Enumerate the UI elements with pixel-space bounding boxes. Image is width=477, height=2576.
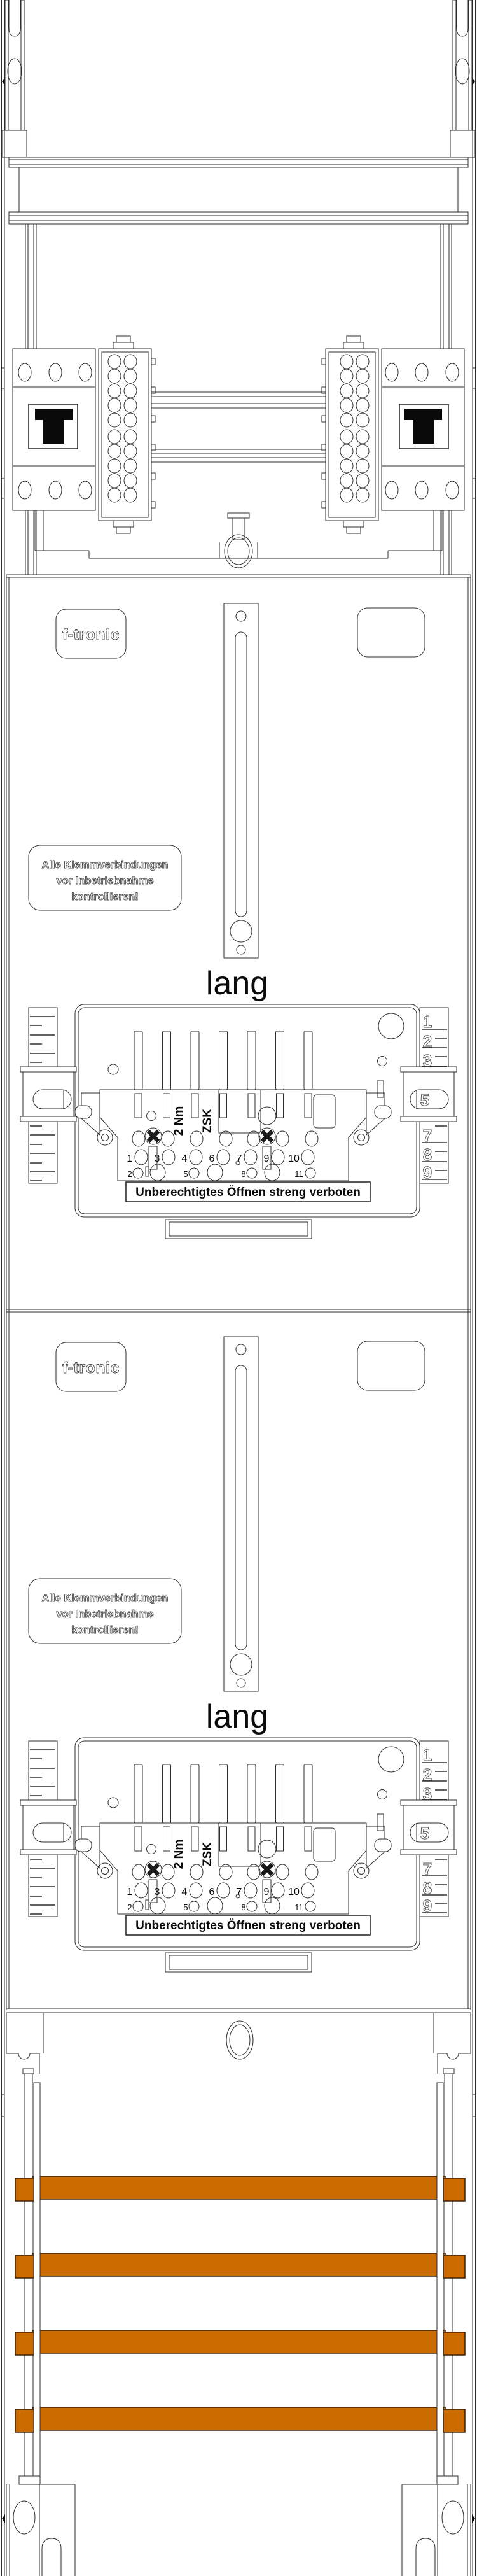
- hole-number: 7: [237, 1153, 242, 1164]
- warning-line-3: kontrollieren!: [71, 891, 138, 903]
- hole-number: 6: [209, 1887, 215, 1897]
- hole-number: 7: [237, 1887, 242, 1897]
- length-marking: lang: [206, 1698, 268, 1735]
- sealable-main-terminal-right: [382, 349, 464, 510]
- busbar-1: [15, 2176, 465, 2201]
- mounting-slot-bracket: [224, 1337, 258, 1691]
- top-mounting-channel-right: [450, 0, 475, 157]
- hole-number: 5: [183, 1903, 188, 1912]
- corner-bracket-left: [6, 2013, 43, 2074]
- hole-number: 2: [127, 1169, 132, 1179]
- slider-right: 5: [401, 1800, 457, 1855]
- bottom-bracket-right: [402, 2484, 471, 2576]
- seal-warning-label: Unberechtigtes Öffnen streng verboten: [126, 1915, 370, 1935]
- zsk-terminal-device: 1 2 3 7 8 9: [20, 1738, 457, 1972]
- hole-number: 8: [241, 1903, 245, 1912]
- keyhole-slot: [457, 0, 468, 36]
- hole-number: 1: [127, 1153, 133, 1164]
- busbar-section: [6, 2013, 471, 2576]
- busbar-4: [15, 2407, 465, 2432]
- hole-number: 3: [155, 1887, 160, 1897]
- channel-foot: [2, 130, 27, 157]
- terminal-plate: [100, 1090, 366, 1181]
- hole-number: 9: [264, 1887, 270, 1897]
- hole-number: 8: [241, 1169, 245, 1179]
- mounting-hole: [13, 2501, 35, 2534]
- hole-number: 10: [288, 1153, 300, 1164]
- warning-line-1: Alle Klemmverbindungen: [42, 859, 169, 871]
- hole-number: 11: [294, 1169, 303, 1179]
- hole-number: 9: [264, 1153, 270, 1164]
- terminal-strip-left: [99, 336, 155, 533]
- ruler-number: 1: [423, 1012, 432, 1031]
- ruler-slider-number: 5: [420, 1824, 429, 1843]
- warning-line-1: Alle Klemmverbindungen: [42, 1593, 169, 1604]
- terminal-plate: [100, 1823, 366, 1914]
- corner-bracket-right: [434, 2013, 471, 2074]
- meter-cabinet-diagram: f-tronic Alle Klemmverbindungen vor Inbe…: [0, 0, 477, 2576]
- hole-number: 11: [294, 1903, 303, 1912]
- din-rail: [9, 157, 468, 224]
- cover-tab: [165, 1220, 312, 1239]
- hole-number: 4: [182, 1153, 188, 1164]
- frame-marker-icon: [2, 77, 475, 86]
- warning-line-2: vor Inbetriebnahme: [56, 875, 153, 887]
- torque-marking: 2 Nm: [172, 1106, 186, 1136]
- terminal-strip-right: [322, 336, 378, 533]
- busbar-3: [15, 2330, 465, 2355]
- warning-line-3: kontrollieren!: [71, 1624, 138, 1636]
- hole-number: 1: [127, 1887, 133, 1897]
- seal-warning-text: Unberechtigtes Öffnen streng verboten: [135, 1186, 361, 1199]
- warning-label: Alle Klemmverbindungen vor Inbetriebnahm…: [29, 1579, 181, 1643]
- ruler-number: 8: [423, 1145, 432, 1164]
- panel-section-2: f-tronic Alle Klemmverbindungen vor Inbe…: [20, 1337, 457, 1972]
- keyhole-slot: [42, 2538, 61, 2576]
- panel-section-1: f-tronic Alle Klemmverbindungen vor Inbe…: [20, 603, 457, 1239]
- hole-number: 10: [288, 1887, 300, 1897]
- mounting-hole: [455, 59, 469, 84]
- keyhole-slot: [9, 0, 20, 36]
- hole-number: 3: [155, 1153, 160, 1164]
- channel-foot: [450, 130, 475, 157]
- cover-tab: [165, 1953, 312, 1972]
- zsk-terminal-device: 1 2 3 7 8 9: [20, 1004, 457, 1239]
- hole-number: 4: [182, 1887, 188, 1897]
- length-marking: lang: [206, 965, 268, 1002]
- hole-number: 2: [127, 1903, 132, 1912]
- mounting-slot-bracket: [224, 603, 258, 958]
- ruler-number: 9: [423, 1163, 432, 1182]
- f-tronic-logo-text: f-tronic: [62, 1359, 120, 1377]
- ruler-number: 9: [423, 1896, 432, 1915]
- seal-warning-text: Unberechtigtes Öffnen streng verboten: [135, 1919, 361, 1932]
- top-mounting-channel-left: [2, 0, 27, 157]
- ruler-number: 2: [423, 1032, 432, 1051]
- frame-marker-icon: [2, 2514, 475, 2523]
- keyhole-slot: [416, 2538, 435, 2576]
- sealable-main-terminal-left: [13, 349, 95, 510]
- ruler-number: 7: [423, 1126, 432, 1145]
- device-type-marking: ZSK: [201, 1109, 214, 1133]
- meter-cabinet-drawing: f-tronic Alle Klemmverbindungen vor Inbe…: [0, 0, 477, 2576]
- busbar-2: [15, 2253, 465, 2278]
- busbars: [15, 2176, 465, 2432]
- blank-plate: [357, 608, 425, 657]
- f-tronic-logo-text: f-tronic: [62, 626, 120, 644]
- hole-number: 6: [209, 1153, 215, 1164]
- slider-left: [20, 1067, 76, 1122]
- hole-number: 5: [183, 1169, 188, 1179]
- cable-clamp: [35, 510, 442, 568]
- warning-line-2: vor Inbetriebnahme: [56, 1608, 153, 1620]
- wire-bridges: [151, 392, 326, 462]
- slider-right: 5: [401, 1067, 457, 1122]
- device-type-marking: ZSK: [201, 1842, 214, 1866]
- mounting-hole: [442, 2501, 464, 2534]
- mounting-hole: [8, 59, 22, 84]
- ruler-number: 2: [423, 1765, 432, 1784]
- torque-marking: 2 Nm: [172, 1840, 186, 1869]
- ruler-number: 8: [423, 1878, 432, 1897]
- blank-plate: [357, 1341, 425, 1390]
- slider-left: [20, 1800, 76, 1855]
- ruler-slider-number: 5: [420, 1090, 429, 1109]
- warning-label: Alle Klemmverbindungen vor Inbetriebnahm…: [29, 845, 181, 910]
- ruler-number: 7: [423, 1859, 432, 1878]
- bottom-bracket-left: [6, 2484, 75, 2576]
- cable-entry-hole: [226, 2021, 253, 2059]
- seal-warning-label: Unberechtigtes Öffnen streng verboten: [126, 1182, 370, 1202]
- ruler-number: 1: [423, 1745, 432, 1764]
